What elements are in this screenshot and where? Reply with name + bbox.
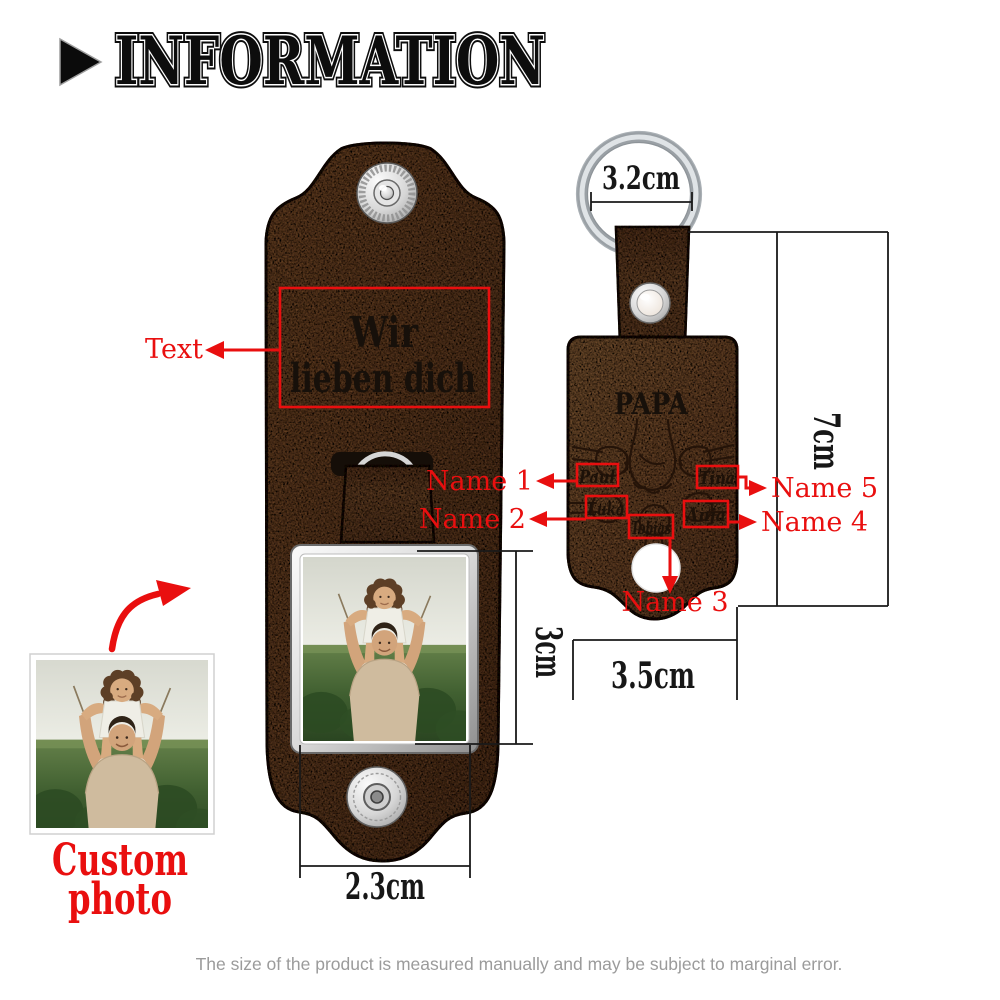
photo-width-value: 2.3cm xyxy=(345,866,425,908)
text-annotation: Text xyxy=(145,334,281,365)
name5-label: Name 5 xyxy=(771,473,878,504)
infographic-canvas: INFORMATION INFORMATION 3.2cm PAPA xyxy=(0,0,1000,1000)
custom-photo-arrow xyxy=(112,580,191,649)
arrow-left-icon xyxy=(536,473,554,489)
photo-height-value: 3cm xyxy=(527,626,569,678)
header: INFORMATION INFORMATION xyxy=(60,22,545,100)
arrow-left-icon xyxy=(529,511,547,527)
custom-photo-label-line2: photo xyxy=(68,874,172,925)
ring-diameter-dimension: 3.2cm xyxy=(591,159,692,211)
disclaimer-text: The size of the product is measured manu… xyxy=(196,954,843,974)
name3-label: Name 3 xyxy=(621,587,728,618)
name4-annotation: Name 4 xyxy=(728,507,868,538)
large-keychain: Wir lieben dich xyxy=(266,143,504,861)
inset-photo xyxy=(27,647,223,847)
small-keychain: 3.2cm PAPA xyxy=(568,132,738,620)
name2-annotation: Name 2 xyxy=(419,504,586,535)
name1-label: Name 1 xyxy=(426,466,533,497)
engraved-name-4: Anja xyxy=(684,505,726,526)
custom-photo-inset: Custom photo xyxy=(27,647,223,925)
page-title: INFORMATION xyxy=(115,22,545,100)
arrow-left-icon xyxy=(205,341,224,359)
engraved-papa-title: PAPA xyxy=(614,387,689,422)
name1-annotation: Name 1 xyxy=(426,466,577,497)
name2-label: Name 2 xyxy=(419,504,526,535)
snap-stud-top xyxy=(357,163,417,223)
engraved-message-line2: lieben dich xyxy=(290,355,476,402)
fob-width-value: 3.5cm xyxy=(611,655,695,697)
name5-annotation: Name 5 xyxy=(738,473,878,504)
ring-diameter-value: 3.2cm xyxy=(602,159,680,197)
arrow-right-icon xyxy=(749,480,767,496)
play-triangle-icon xyxy=(60,39,101,85)
product-information-sheet: INFORMATION INFORMATION 3.2cm PAPA xyxy=(0,0,1000,1000)
arrow-right-icon xyxy=(739,514,757,530)
name4-label: Name 4 xyxy=(761,507,868,538)
snap-socket-bottom xyxy=(347,767,407,827)
arrow-curved-head-icon xyxy=(156,580,191,606)
fob-height-value: 7cm xyxy=(805,412,847,470)
photo-frame xyxy=(291,545,481,753)
engraved-message-line1: Wir xyxy=(349,308,419,357)
frame-photo xyxy=(295,557,481,747)
text-annotation-label: Text xyxy=(145,334,203,365)
engraved-name-3: Tobias xyxy=(631,518,671,539)
engraved-name-5: Tina xyxy=(699,468,735,489)
strap-rivet xyxy=(630,283,670,323)
